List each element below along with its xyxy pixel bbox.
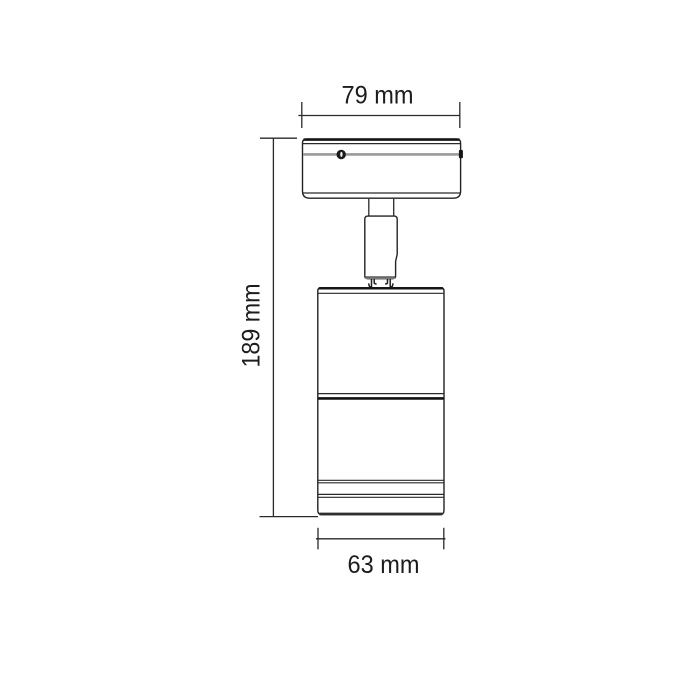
svg-text:79 mm: 79 mm: [342, 82, 414, 110]
svg-text:63 mm: 63 mm: [348, 551, 420, 579]
svg-text:189 mm: 189 mm: [238, 284, 266, 368]
